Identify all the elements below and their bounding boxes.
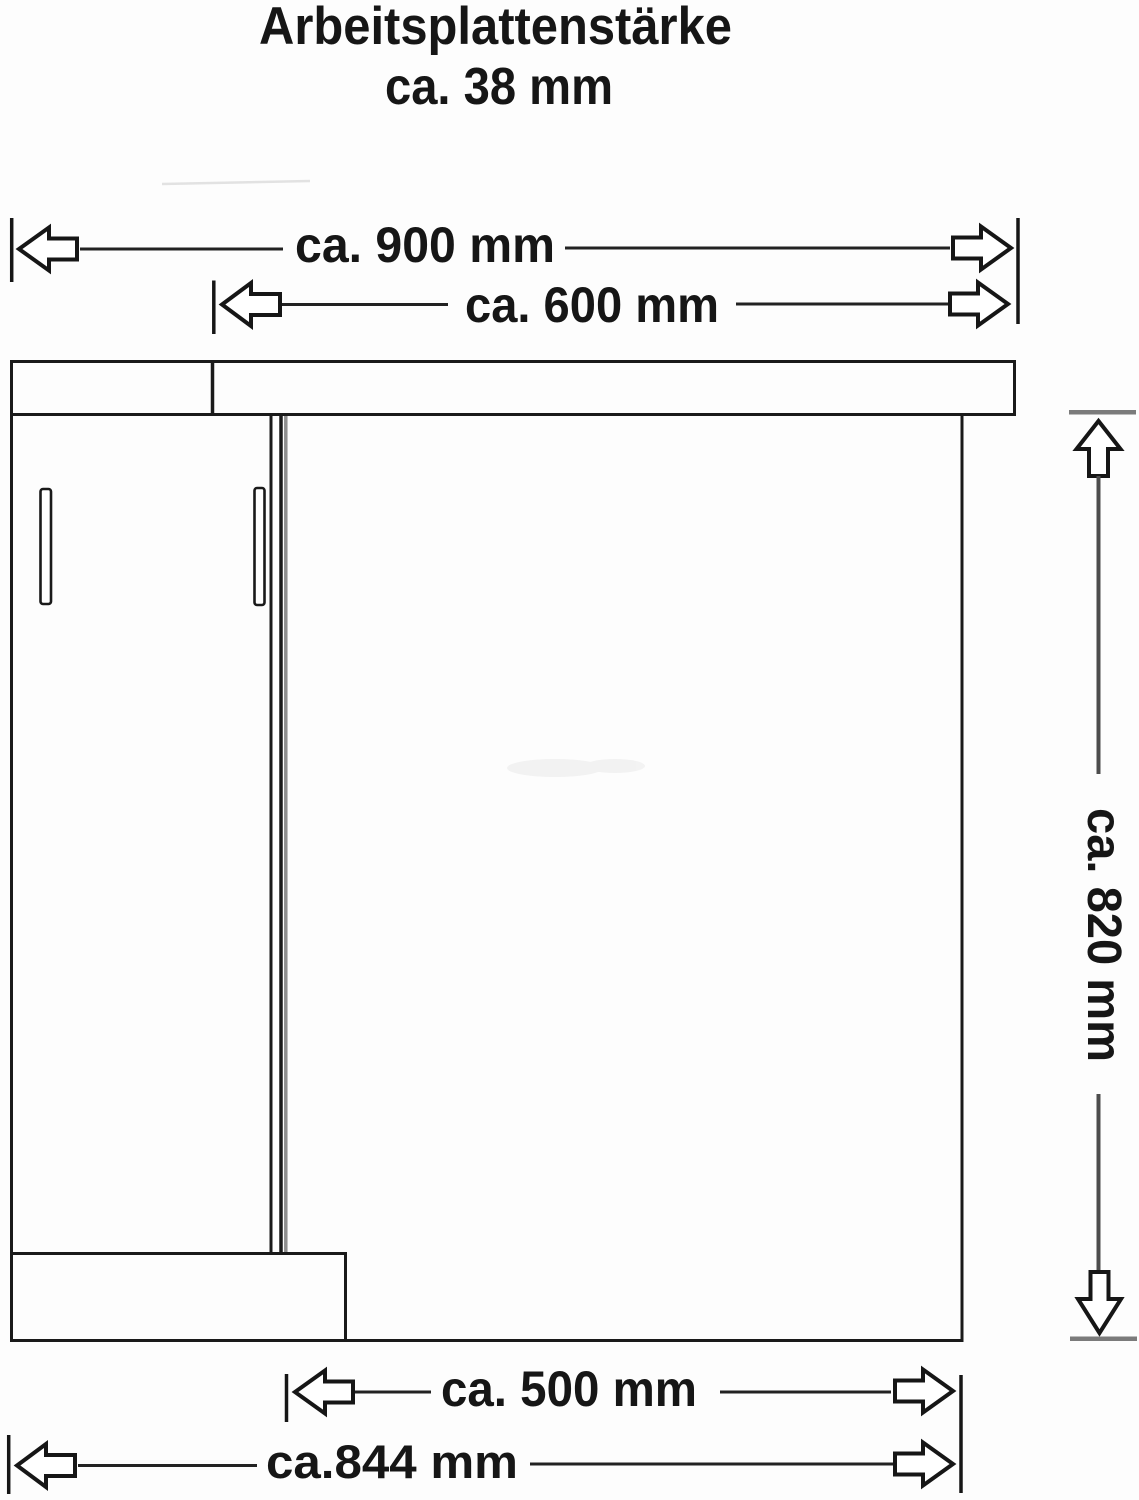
- svg-text:ca. 900 mm: ca. 900 mm: [295, 217, 555, 273]
- svg-text:ca. 820 mm: ca. 820 mm: [1077, 808, 1130, 1062]
- svg-text:ca. 500 mm: ca. 500 mm: [441, 1361, 697, 1417]
- svg-text:ca. 600 mm: ca. 600 mm: [465, 277, 719, 333]
- svg-text:Arbeitsplattenstärke: Arbeitsplattenstärke: [259, 0, 732, 56]
- svg-text:ca.844 mm: ca.844 mm: [266, 1435, 518, 1488]
- svg-text:ca. 38 mm: ca. 38 mm: [385, 58, 613, 116]
